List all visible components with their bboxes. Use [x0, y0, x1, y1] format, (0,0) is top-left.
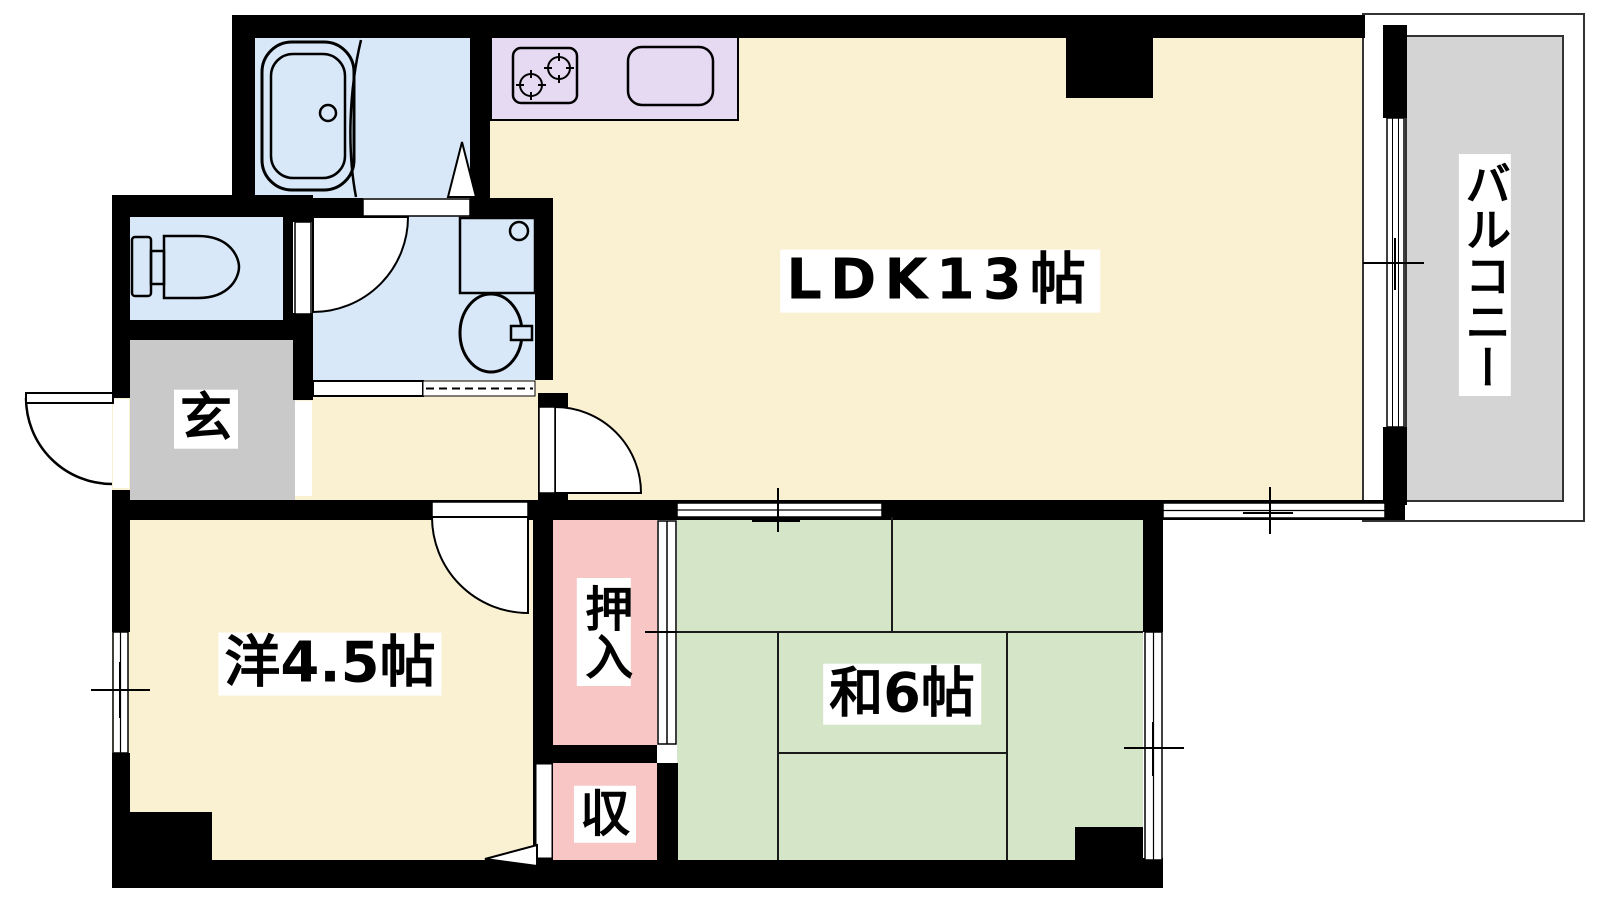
wall-top [232, 15, 1365, 38]
wall-bottom-step [130, 812, 212, 860]
wall-mid-band [112, 500, 1405, 520]
room-toilet [130, 217, 293, 320]
wall-washroom-right [535, 198, 553, 380]
kitchen-counter [490, 36, 739, 121]
wall-toilet-top [112, 195, 313, 217]
wall-left-lower [112, 753, 130, 888]
room-washroom [313, 215, 535, 380]
wall-balcony-bottom [1383, 427, 1407, 505]
wall-bath-right [470, 38, 490, 198]
wall-bath-left [232, 38, 255, 198]
wall-ldk-top-pillar [1066, 33, 1153, 98]
wall-hall-ldk [538, 393, 568, 502]
room-bathroom [255, 38, 470, 198]
wall-oshiire-storage [553, 745, 657, 763]
label-balcony: バルコニー [1459, 154, 1511, 396]
wall-washitsu-right-upper [1143, 502, 1163, 632]
label-storage: 収 [574, 786, 636, 843]
label-genkan: 玄 [174, 390, 238, 449]
wall-doorstrip-top [293, 215, 313, 222]
wall-storage-right [657, 763, 678, 865]
floor-plan-canvas: LDK13帖 バルコニー 玄 洋4.5帖 押入 収 和6帖 [0, 0, 1600, 900]
wall-doorstrip-bottom [293, 313, 313, 400]
wall-toilet-right [283, 217, 293, 320]
wall-left-mid [112, 490, 130, 632]
wall-closet-left [533, 520, 553, 888]
label-japanese: 和6帖 [823, 664, 981, 725]
label-western: 洋4.5帖 [218, 633, 441, 696]
label-oshiire: 押入 [577, 578, 631, 686]
wall-left-upper [112, 217, 130, 398]
label-ldk: LDK13帖 [780, 250, 1100, 313]
wall-washitsu-pillar [1075, 827, 1143, 865]
bath-door-opening [363, 199, 470, 216]
wall-balcony-top [1383, 25, 1407, 118]
wall-toilet-bottom [112, 320, 295, 340]
wall-bottom [112, 860, 1163, 888]
